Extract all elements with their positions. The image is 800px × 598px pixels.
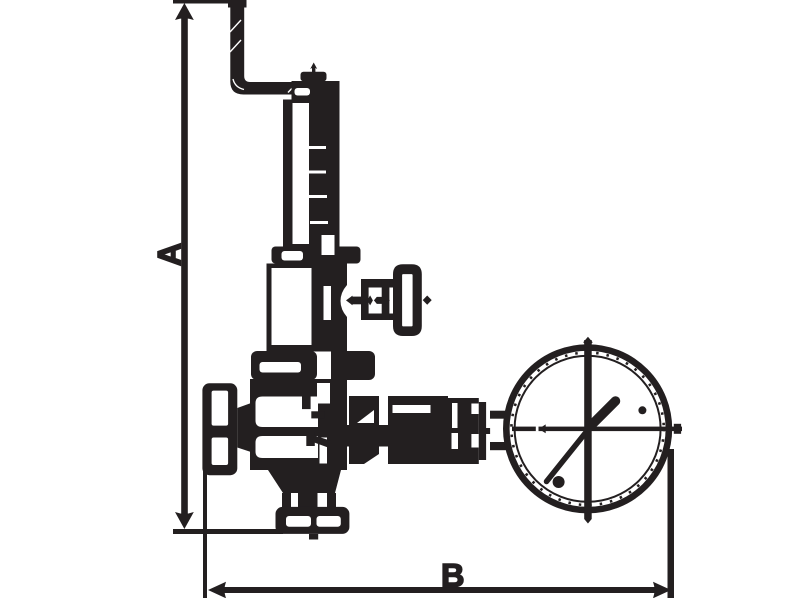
svg-text:A: A [152, 243, 188, 266]
svg-text:B: B [441, 558, 464, 594]
